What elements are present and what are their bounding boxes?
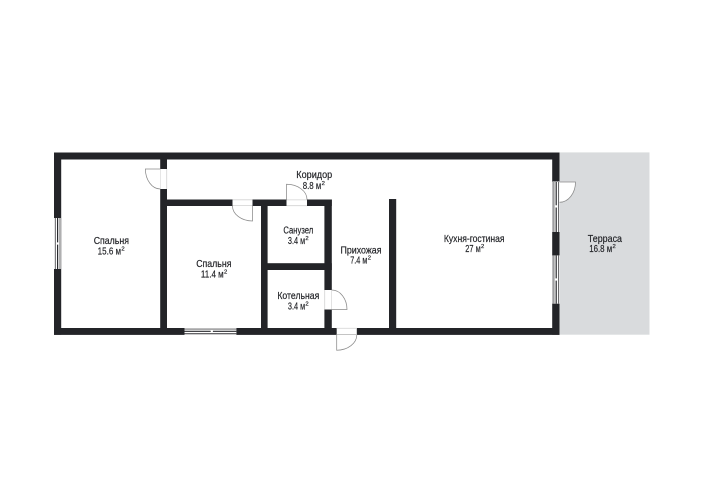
svg-text:2: 2 xyxy=(305,302,308,308)
svg-text:Спальня: Спальня xyxy=(196,259,231,270)
svg-text:2: 2 xyxy=(121,247,124,253)
svg-text:2: 2 xyxy=(613,244,616,250)
svg-text:15.6 м: 15.6 м xyxy=(98,247,122,258)
svg-text:16.8 м: 16.8 м xyxy=(589,244,612,255)
svg-text:Коридор: Коридор xyxy=(296,170,332,181)
svg-text:2: 2 xyxy=(224,270,227,276)
svg-text:27 м: 27 м xyxy=(465,244,480,255)
svg-text:3.4 м: 3.4 м xyxy=(288,302,305,313)
svg-text:2: 2 xyxy=(305,236,308,242)
svg-text:2: 2 xyxy=(368,256,371,262)
svg-text:11.4 м: 11.4 м xyxy=(201,270,224,281)
svg-text:Санузел: Санузел xyxy=(283,226,313,237)
svg-text:3.4 м: 3.4 м xyxy=(288,236,305,247)
svg-text:2: 2 xyxy=(481,244,484,250)
svg-text:8.8 м: 8.8 м xyxy=(303,181,322,192)
svg-text:2: 2 xyxy=(322,181,325,187)
svg-text:7.4 м: 7.4 м xyxy=(350,256,367,267)
